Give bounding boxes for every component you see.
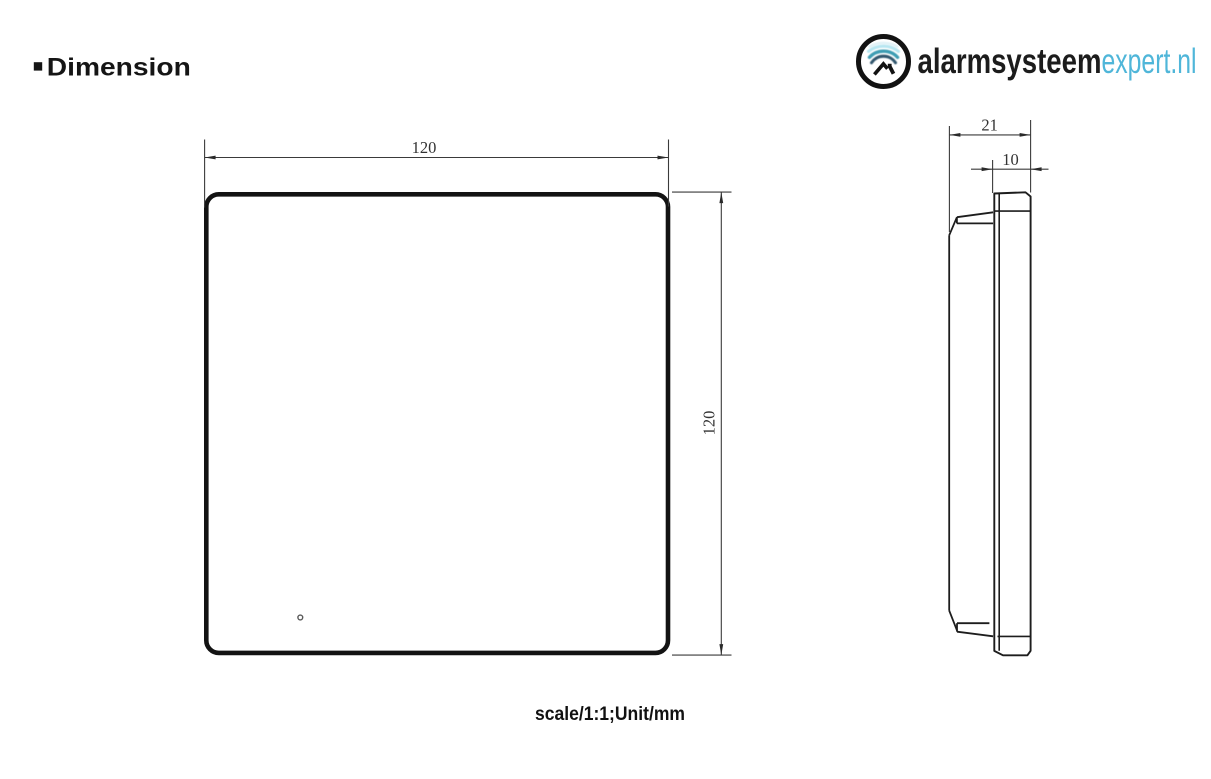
svg-text:120: 120 [412,138,437,157]
svg-text:10: 10 [1002,150,1019,169]
svg-text:Dimension: Dimension [47,54,191,82]
svg-text:scale/1:1;Unit/mm: scale/1:1;Unit/mm [535,703,685,725]
svg-text:21: 21 [981,116,998,135]
svg-text:120: 120 [700,411,719,436]
svg-text:expert.nl: expert.nl [1102,42,1197,81]
svg-text:alarmsysteem: alarmsysteem [918,42,1102,81]
